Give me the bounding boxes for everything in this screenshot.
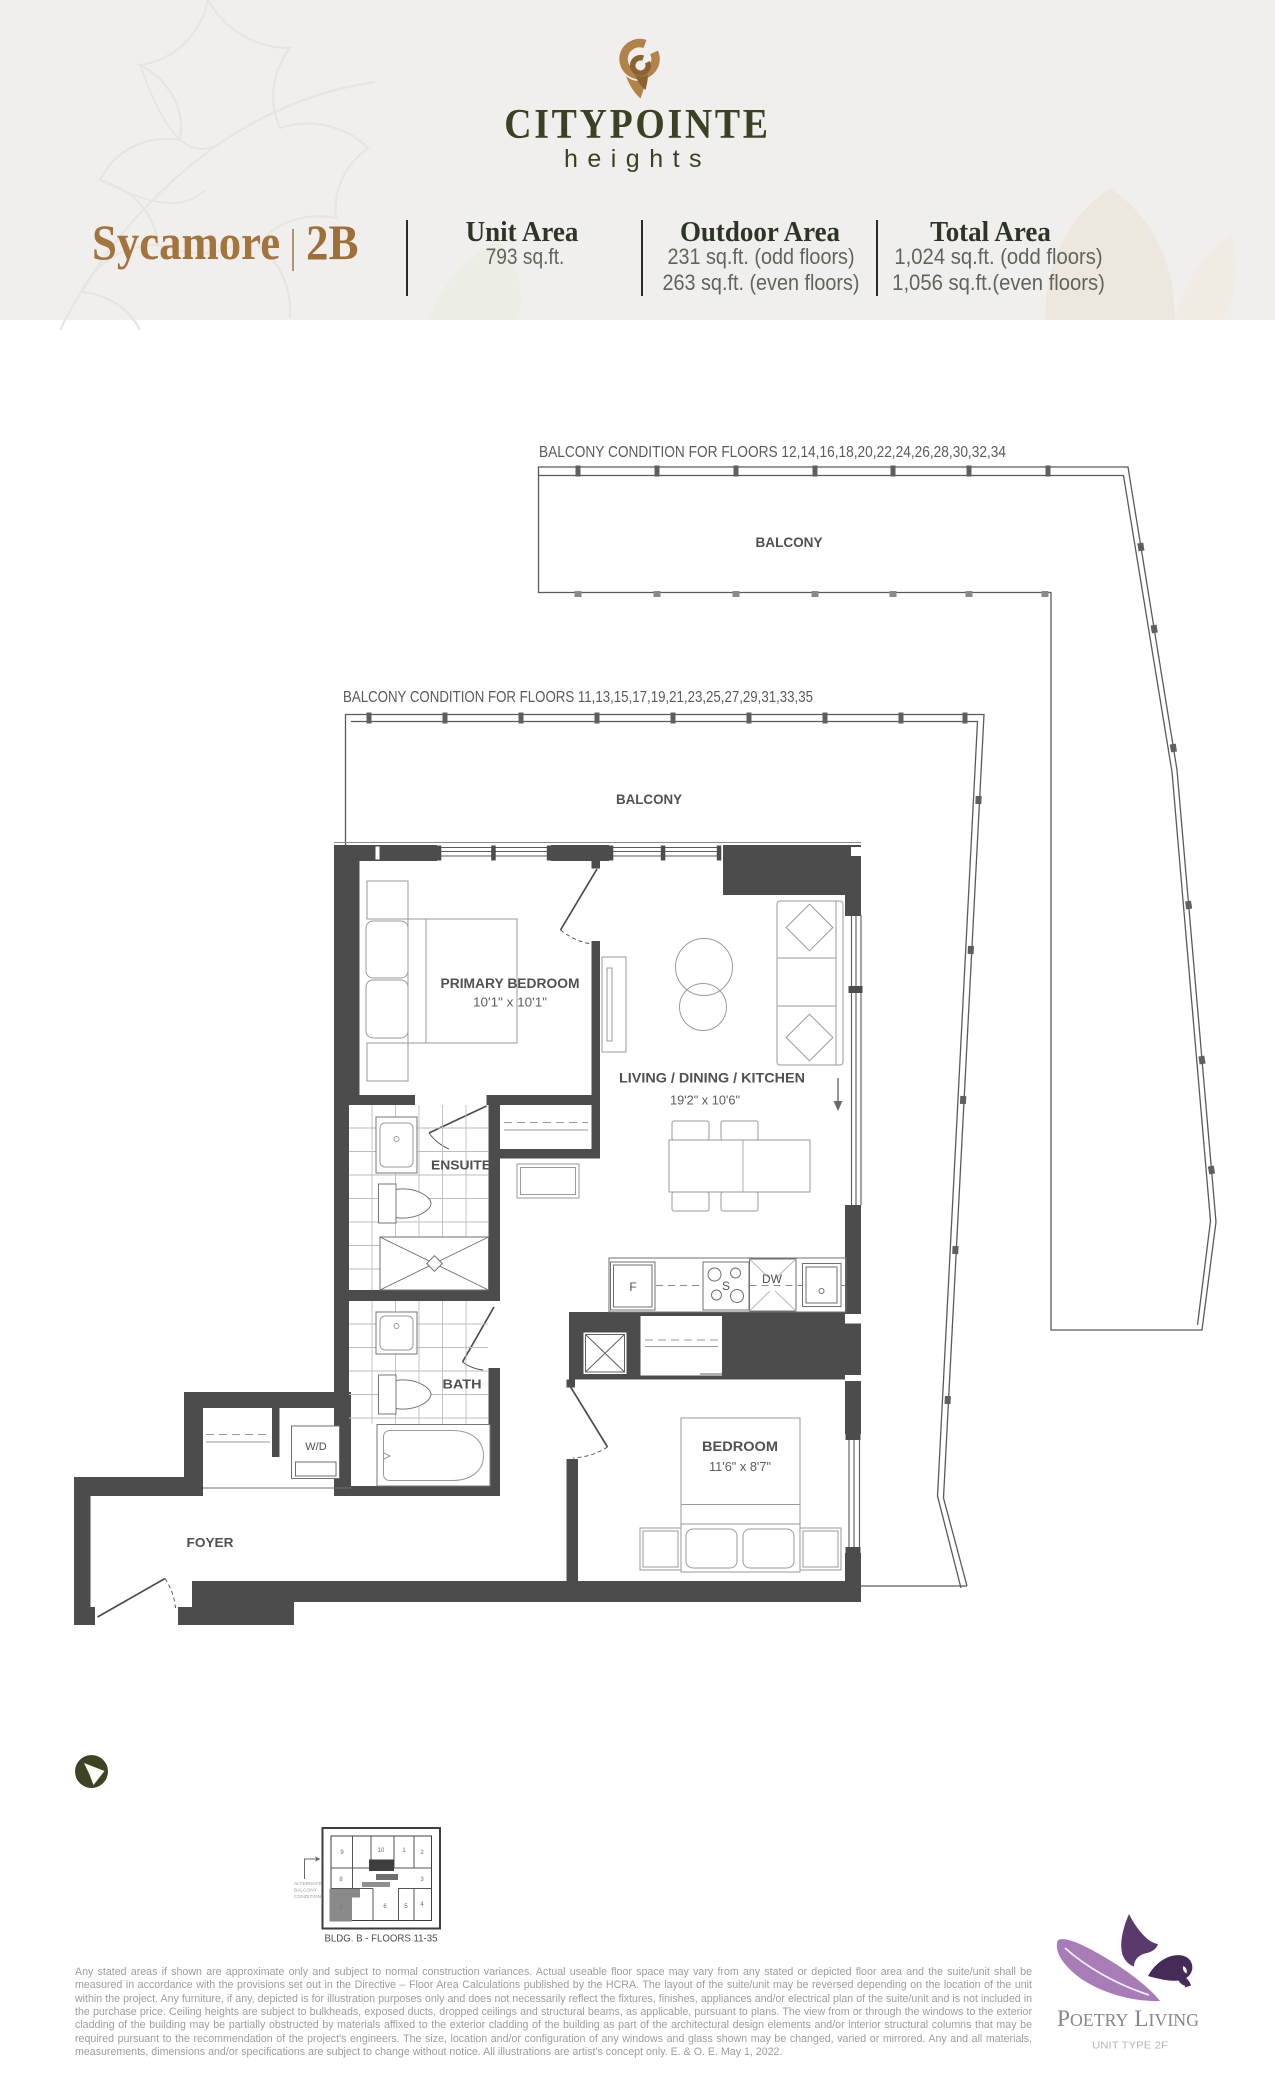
svg-text:CONDITION: CONDITION	[294, 1894, 321, 1900]
svg-text:BALCONY CONDITION FOR FLOORS 1: BALCONY CONDITION FOR FLOORS 11,13,15,17…	[343, 689, 813, 706]
svg-text:19'2" x 10'6": 19'2" x 10'6"	[670, 1093, 740, 1108]
svg-text:BALCONY: BALCONY	[294, 1888, 318, 1894]
svg-text:10: 10	[378, 1848, 385, 1854]
svg-text:PRIMARY BEDROOM: PRIMARY BEDROOM	[441, 976, 580, 991]
svg-text:W/D: W/D	[305, 1441, 326, 1453]
svg-text:LIVING / DINING / KITCHEN: LIVING / DINING / KITCHEN	[619, 1071, 805, 1086]
svg-text:BALCONY: BALCONY	[616, 792, 682, 807]
svg-text:2: 2	[420, 1850, 424, 1856]
svg-text:ALTERNATE: ALTERNATE	[294, 1881, 322, 1887]
svg-text:FOYER: FOYER	[187, 1536, 234, 1550]
svg-text:5: 5	[404, 1904, 408, 1910]
svg-text:UNIT TYPE 2F: UNIT TYPE 2F	[1092, 2040, 1168, 2052]
svg-text:3: 3	[420, 1877, 424, 1883]
svg-text:8: 8	[339, 1877, 343, 1883]
svg-text:BLDG. B - FLOORS 11-35: BLDG. B - FLOORS 11-35	[325, 1933, 438, 1945]
svg-text:BALCONY: BALCONY	[756, 535, 823, 550]
svg-text:DW: DW	[762, 1272, 783, 1286]
svg-text:BATH: BATH	[443, 1378, 482, 1392]
svg-text:11'6" x 8'7": 11'6" x 8'7"	[709, 1459, 771, 1474]
svg-text:POETRY LIVING: POETRY LIVING	[1057, 2006, 1199, 2031]
svg-text:F: F	[629, 1280, 636, 1294]
svg-text:ENSUITE: ENSUITE	[431, 1159, 491, 1173]
svg-text:9: 9	[340, 1850, 344, 1856]
svg-text:10'1" x 10'1": 10'1" x 10'1"	[473, 995, 547, 1010]
svg-text:1: 1	[402, 1848, 406, 1854]
svg-text:4: 4	[420, 1902, 424, 1908]
svg-text:BALCONY CONDITION FOR FLOORS 1: BALCONY CONDITION FOR FLOORS 12,14,16,18…	[539, 444, 1006, 461]
svg-text:S: S	[722, 1279, 730, 1293]
svg-text:6: 6	[383, 1904, 387, 1910]
svg-text:BEDROOM: BEDROOM	[702, 1439, 778, 1454]
